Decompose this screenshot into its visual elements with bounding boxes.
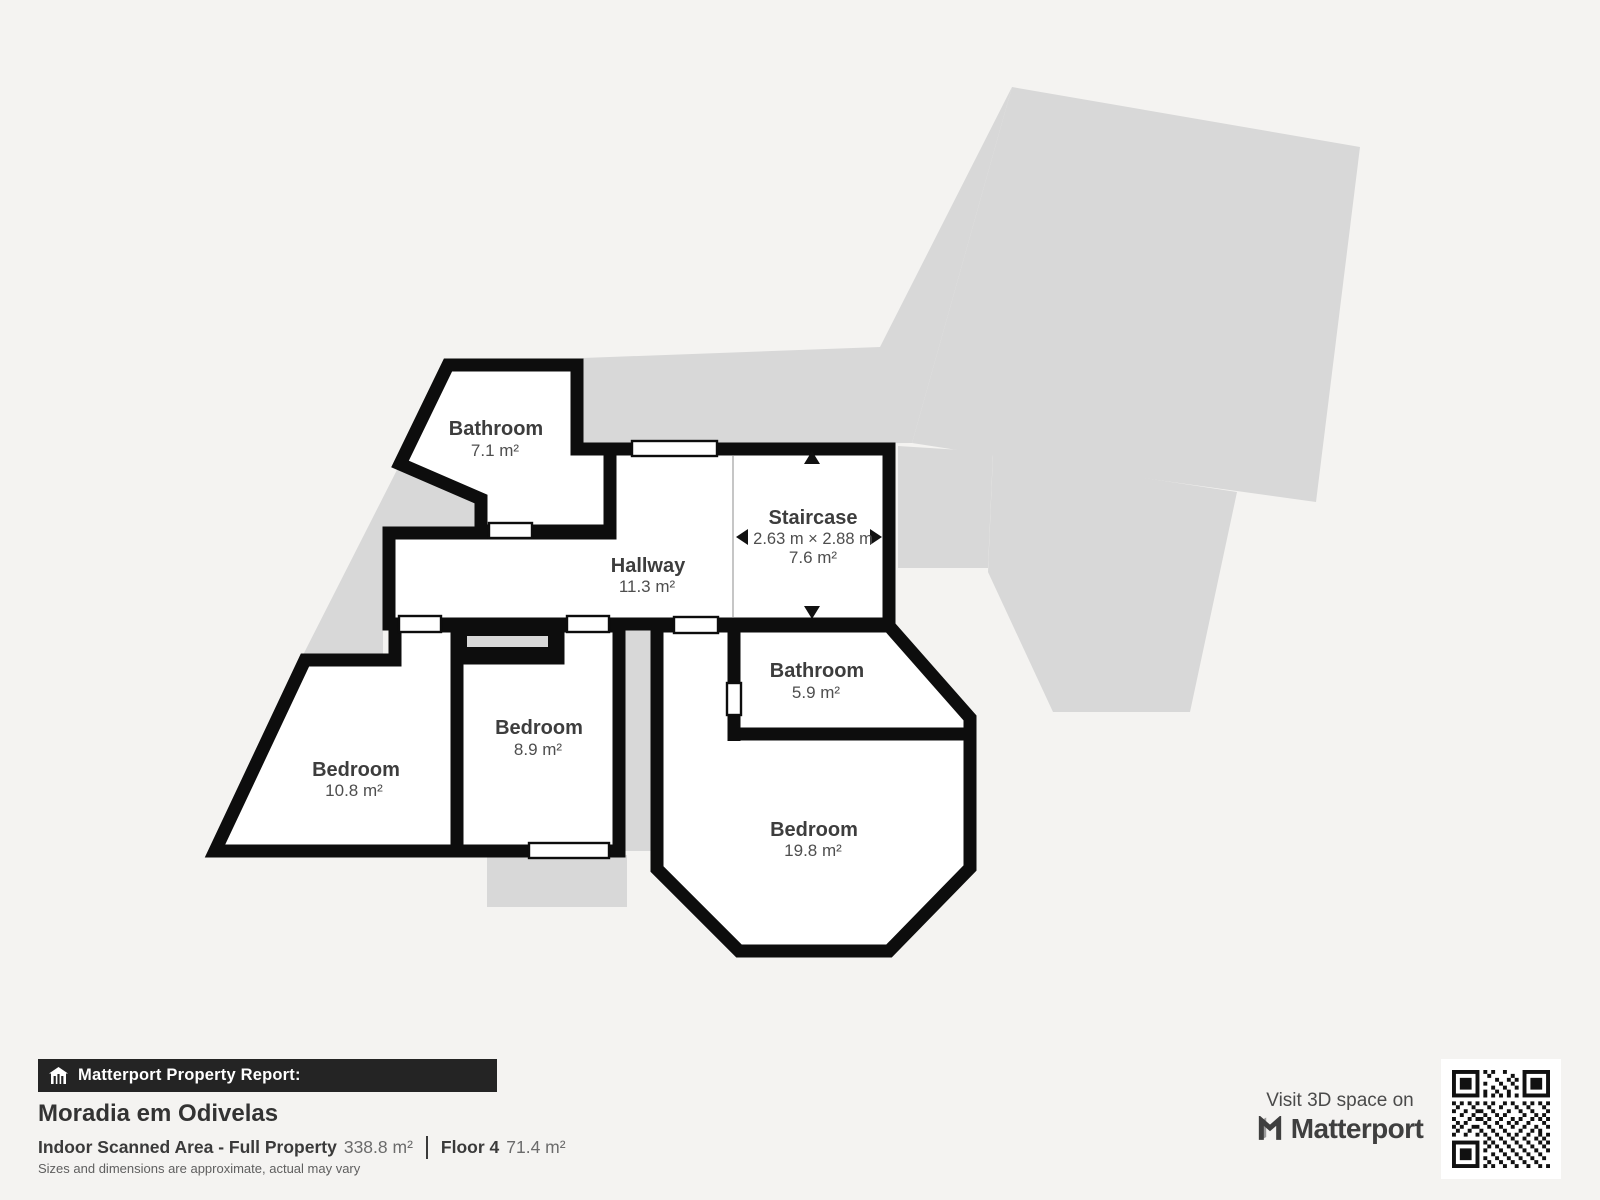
matterport-wordmark: Matterport: [1291, 1113, 1423, 1145]
door-opening: [674, 617, 718, 633]
room-label: Hallway: [611, 555, 686, 577]
closet-notch: [462, 631, 553, 652]
qr-code-pattern: [1452, 1070, 1550, 1168]
window-opening: [632, 441, 717, 456]
report-page: Bathroom 7.1 m² Hallway 11.3 m² Staircas…: [0, 0, 1600, 1200]
area-summary-line: Indoor Scanned Area - Full Property 338.…: [38, 1134, 566, 1160]
scanned-area-value: 338.8 m²: [344, 1137, 413, 1158]
room-label: Bedroom: [312, 759, 400, 781]
matterport-logo: Matterport: [1238, 1113, 1442, 1145]
qr-code: [1441, 1059, 1561, 1179]
room-dimensions: 2.63 m × 2.88 m: [753, 530, 873, 548]
report-header-bar: Matterport Property Report:: [38, 1059, 497, 1092]
room-area: 19.8 m²: [784, 841, 842, 860]
room-label: Bathroom: [770, 660, 864, 682]
room-area: 8.9 m²: [514, 740, 563, 759]
balcony-projection: [487, 855, 627, 907]
room-label: Bathroom: [449, 418, 543, 440]
room-area: 11.3 m²: [619, 577, 676, 596]
door-opening: [489, 523, 532, 538]
room-area: 7.1 m²: [471, 441, 520, 460]
matterport-mark-icon: [1257, 1116, 1283, 1142]
window-opening: [529, 843, 609, 858]
room-area: 7.6 m²: [789, 548, 838, 567]
room-bedroom-left-shape: [215, 626, 457, 851]
door-opening: [727, 683, 741, 715]
room-label: Bedroom: [495, 717, 583, 739]
divider: [426, 1136, 428, 1159]
floor-label: Floor 4: [441, 1137, 499, 1158]
floor-plan: Bathroom 7.1 m² Hallway 11.3 m² Staircas…: [0, 0, 1600, 1200]
adjacent-structure-patch: [898, 446, 993, 568]
floor-area-value: 71.4 m²: [506, 1137, 565, 1158]
adjacent-structure-roof: [912, 87, 1360, 502]
report-bar-label: Matterport Property Report:: [78, 1066, 301, 1085]
door-opening: [567, 616, 609, 632]
visit-3d-space-text: Visit 3D space on: [1238, 1090, 1442, 1112]
room-area: 5.9 m²: [792, 683, 841, 702]
house-icon: [49, 1067, 68, 1084]
door-opening: [399, 616, 441, 632]
scanned-area-label: Indoor Scanned Area - Full Property: [38, 1137, 337, 1158]
room-area: 10.8 m²: [325, 781, 383, 800]
room-label: Staircase: [769, 507, 858, 529]
room-label: Bedroom: [770, 819, 858, 841]
property-name: Moradia em Odivelas: [38, 1100, 278, 1128]
disclaimer-text: Sizes and dimensions are approximate, ac…: [38, 1161, 360, 1176]
adjacent-structure-lower: [988, 455, 1237, 712]
unscanned-strip: [624, 630, 651, 851]
